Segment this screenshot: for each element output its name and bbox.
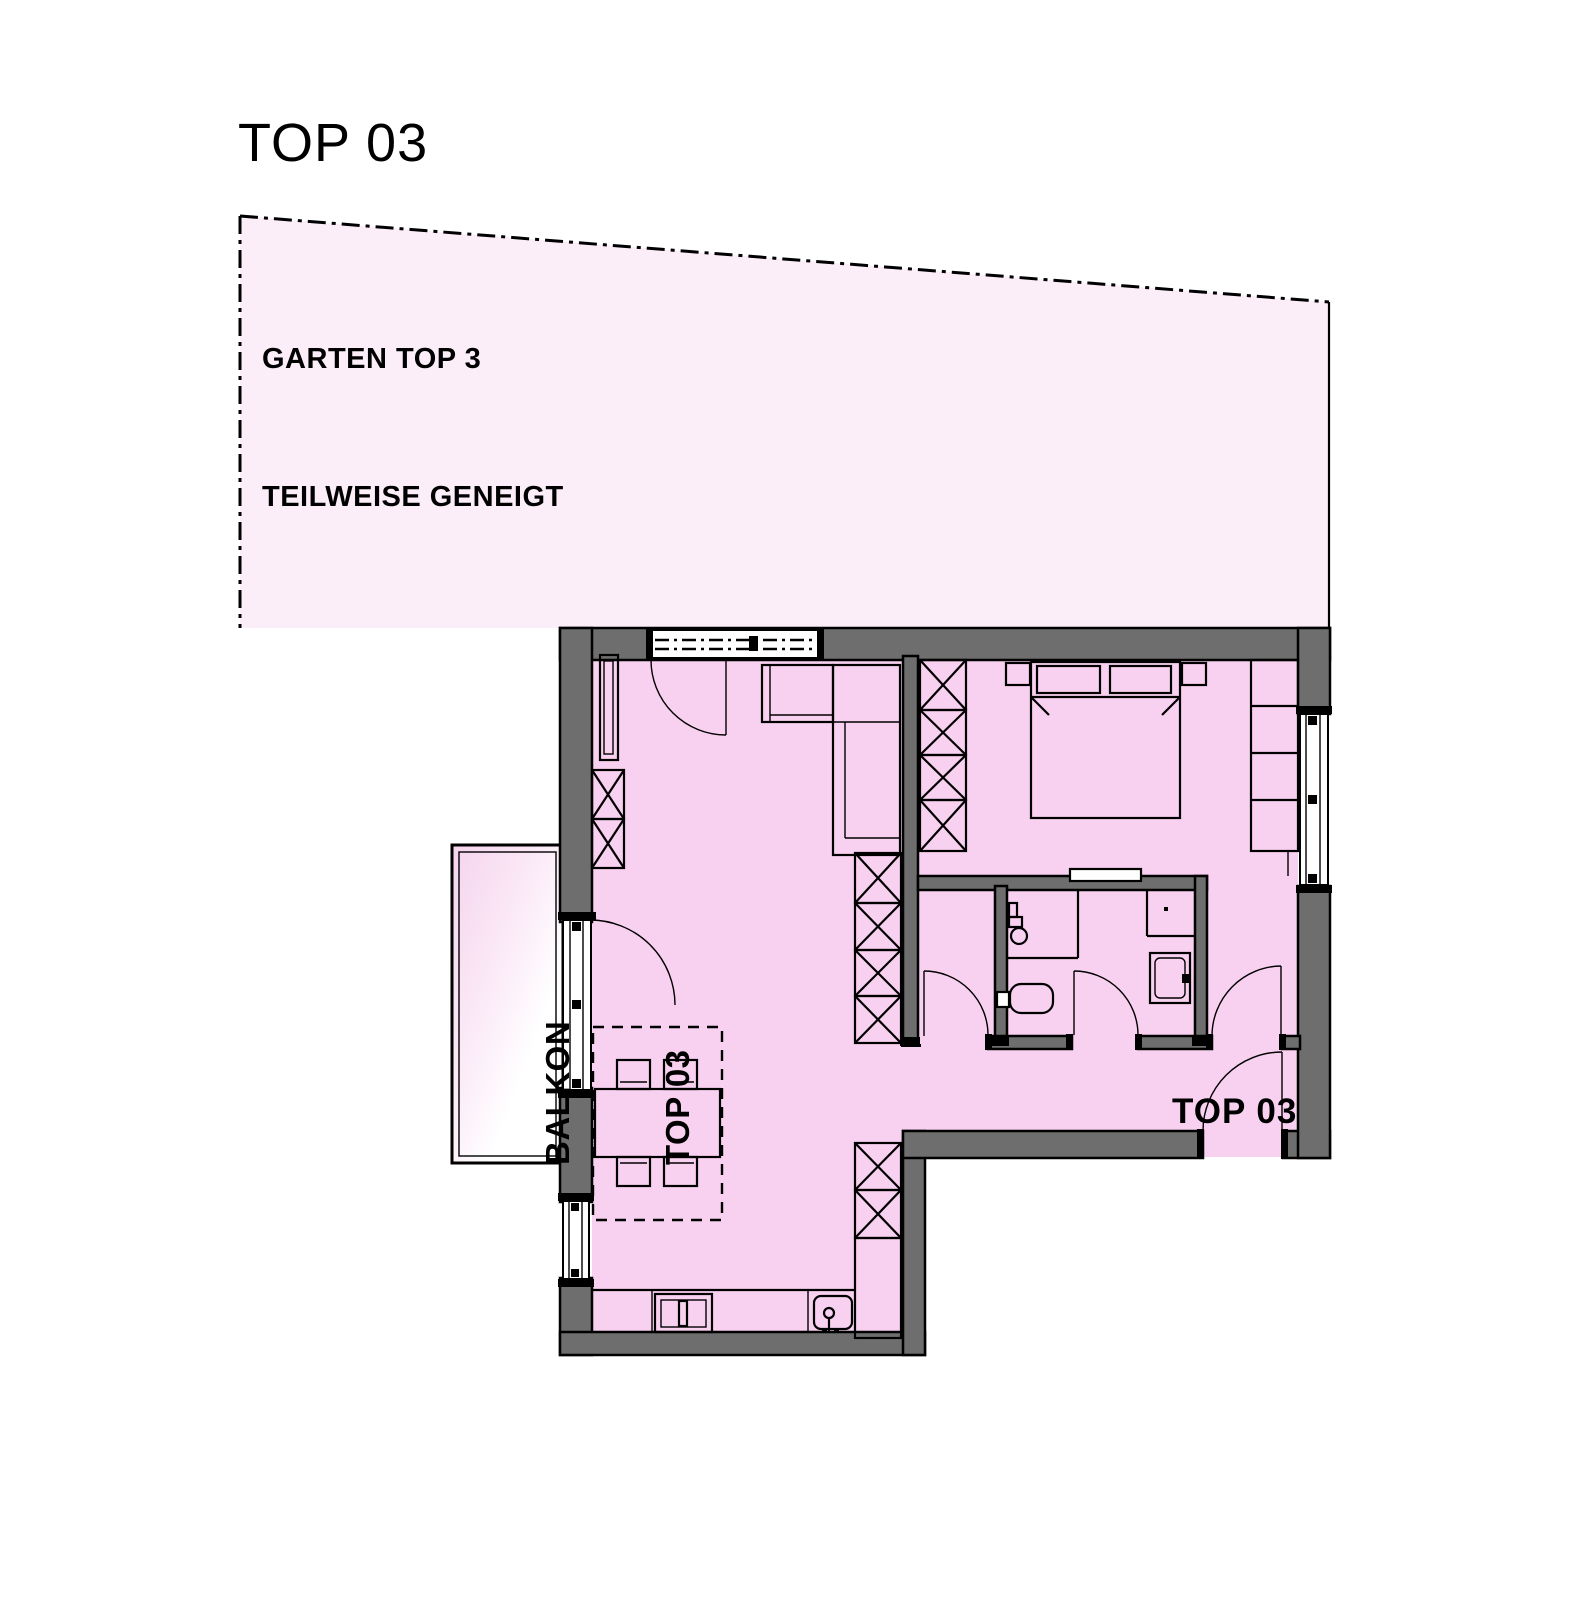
wall-bath-right <box>1195 876 1207 1044</box>
wall-hall-bottom-left <box>903 1131 1203 1158</box>
wall-left-upper <box>560 628 592 922</box>
garden-label-line2: TEILWEISE GENEIGT <box>262 474 564 520</box>
page-title: TOP 03 <box>238 112 428 174</box>
wall-right-lower <box>1298 886 1330 1158</box>
garden-label: GARTEN TOP 3 TEILWEISE GENEIGT <box>262 244 564 612</box>
apartment-floor <box>592 660 1298 1333</box>
balcony-label: BALKON TOP 03 <box>458 1005 538 1165</box>
wall-wc-bath <box>995 886 1007 1044</box>
unit-label: TOP 03 <box>1172 1092 1297 1132</box>
entrance-threshold <box>1203 1131 1283 1157</box>
balcony-label-line2: TOP 03 <box>658 1005 698 1165</box>
bedroom-window <box>1300 714 1328 885</box>
kitchen-window <box>563 1201 589 1279</box>
wall-living-bedroom <box>903 656 918 1044</box>
entrance-window-band <box>652 630 818 658</box>
garden-label-line1: GARTEN TOP 3 <box>262 336 564 382</box>
wall-bottom-living <box>560 1332 925 1355</box>
balcony-label-line1: BALKON <box>538 1005 578 1165</box>
wall-right-upper <box>1298 628 1330 714</box>
wall-bedroom-bottom <box>918 876 1207 890</box>
wall-living-right-lower <box>903 1131 925 1355</box>
floor-plan-drawing <box>0 0 1586 1608</box>
floor-plan-page: TOP 03 GARTEN TOP 3 TEILWEISE GENEIGT BA… <box>0 0 1586 1608</box>
bedroom-sliding-door <box>1070 869 1141 881</box>
